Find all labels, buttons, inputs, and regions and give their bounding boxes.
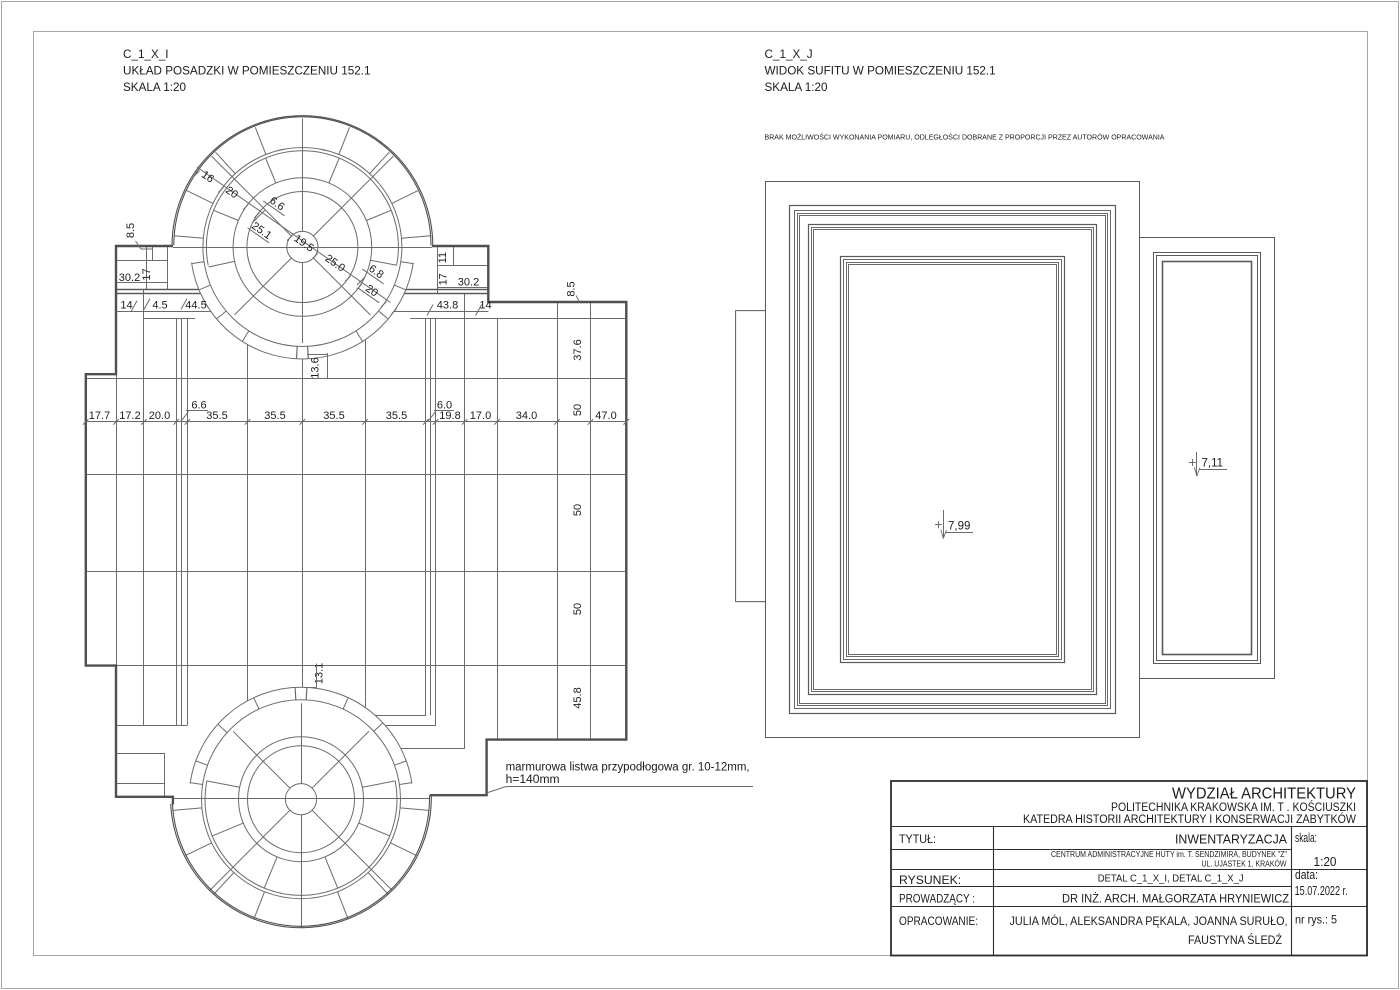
svg-text:35.5: 35.5 [323,410,344,422]
svg-text:20.0: 20.0 [149,410,170,422]
svg-text:BRAK MOŻLIWOŚCI WYKONANIA POMI: BRAK MOŻLIWOŚCI WYKONANIA POMIARU, ODLEG… [765,133,1165,142]
svg-text:34.0: 34.0 [516,410,537,422]
svg-text:50: 50 [572,504,584,516]
svg-text:50: 50 [572,603,584,615]
svg-text:14: 14 [479,300,491,312]
svg-text:FAUSTYNA ŚLEDŹ: FAUSTYNA ŚLEDŹ [1188,934,1282,947]
svg-text:7,99: 7,99 [948,521,970,533]
svg-text:6.6: 6.6 [191,400,206,412]
svg-text:50: 50 [572,404,584,416]
svg-text:8.5: 8.5 [566,281,578,296]
svg-text:19.8: 19.8 [439,410,460,422]
svg-text:13.6: 13.6 [310,357,322,378]
svg-text:35.5: 35.5 [206,410,227,422]
svg-text:KATEDRA HISTORII ARCHITEKTURY: KATEDRA HISTORII ARCHITEKTURY I KONSERWA… [1023,811,1356,826]
svg-text:44.5: 44.5 [185,300,206,312]
svg-text:35.5: 35.5 [264,410,285,422]
svg-text:C_1_X_I: C_1_X_I [123,48,168,61]
svg-text:UKŁAD POSADZKI W POMIESZCZENIU: UKŁAD POSADZKI W POMIESZCZENIU 152.1 [123,65,370,78]
svg-text:14: 14 [120,300,132,312]
svg-text:DR INŻ. ARCH. MAŁGORZATA HRYNI: DR INŻ. ARCH. MAŁGORZATA HRYNIEWICZ [1062,893,1289,906]
svg-text:C_1_X_J: C_1_X_J [765,48,813,61]
svg-text:30.2: 30.2 [458,277,479,289]
svg-text:17.2: 17.2 [119,410,140,422]
svg-text:PROWADZĄCY :: PROWADZĄCY : [899,892,975,906]
svg-text:30.2: 30.2 [119,272,140,284]
svg-text:INWENTARYZACJA: INWENTARYZACJA [1175,833,1288,847]
svg-text:SKALA 1:20: SKALA 1:20 [765,81,829,94]
svg-text:JULIA MÓL, ALEKSANDRA PĘKALA,: JULIA MÓL, ALEKSANDRA PĘKALA, JOANNA SUR… [1010,915,1288,928]
svg-text:43.8: 43.8 [437,300,458,312]
svg-text:UL. UJASTEK 1, KRAKÓW: UL. UJASTEK 1, KRAKÓW [1202,860,1287,869]
svg-text:17.7: 17.7 [89,410,110,422]
svg-text:OPRACOWANIE:: OPRACOWANIE: [899,914,978,928]
svg-text:nr rys.: 5: nr rys.: 5 [1295,913,1337,927]
svg-text:8.5: 8.5 [125,223,137,238]
svg-text:17: 17 [438,273,450,285]
svg-text:h=140mm: h=140mm [506,774,560,786]
svg-text:4.5: 4.5 [152,300,167,312]
svg-text:6.0: 6.0 [437,400,452,412]
svg-text:skala:: skala: [1295,831,1317,845]
svg-text:RYSUNEK:: RYSUNEK: [899,873,961,887]
svg-text:37.6: 37.6 [572,339,584,360]
svg-text:WIDOK SUFITU W POMIESZCZENIU 1: WIDOK SUFITU W POMIESZCZENIU 152.1 [765,65,996,78]
svg-text:SKALA 1:20: SKALA 1:20 [123,81,187,94]
svg-text:TYTUŁ:: TYTUŁ: [899,832,936,846]
svg-text:11: 11 [437,252,449,263]
svg-text:1:20: 1:20 [1314,854,1337,869]
svg-text:15.07.2022 r.: 15.07.2022 r. [1295,884,1348,898]
svg-text:marmurowa listwa przypodłogowa: marmurowa listwa przypodłogowa gr. 10-12… [506,762,750,774]
svg-text:17: 17 [141,268,153,280]
svg-text:13.1: 13.1 [314,663,326,684]
svg-text:47.0: 47.0 [595,410,616,422]
svg-text:7,11: 7,11 [1202,458,1224,470]
svg-text:data:: data: [1295,868,1318,882]
svg-text:CENTRUM ADMINISTRACYJNE HUTY i: CENTRUM ADMINISTRACYJNE HUTY im. T. SEND… [1051,850,1287,859]
svg-text:45.8: 45.8 [572,687,584,708]
svg-text:17.0: 17.0 [470,410,491,422]
svg-text:DETAL C_1_X_I, DETAL C_1_X_J: DETAL C_1_X_I, DETAL C_1_X_J [1098,874,1244,885]
svg-text:35.5: 35.5 [386,410,407,422]
